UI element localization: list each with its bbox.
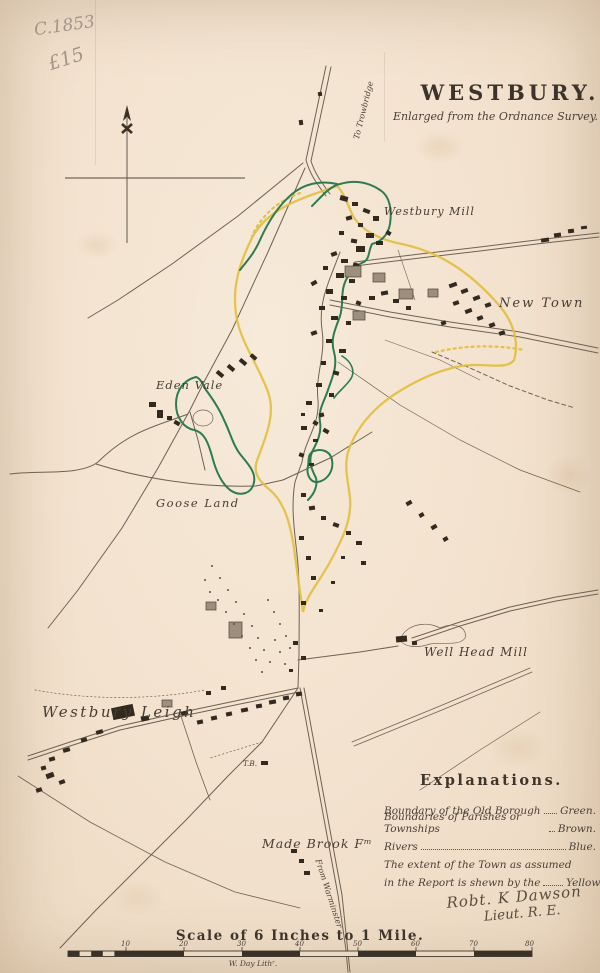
label-new-town: New Town — [499, 296, 584, 311]
label-eden-vale: Eden Vale — [156, 378, 223, 392]
legend-value: Green. — [560, 805, 596, 817]
buildings-layer — [35, 92, 587, 875]
lithographer-credit: W. Day Lithʳ. — [203, 959, 303, 968]
scale-tick-label: 80 — [525, 940, 534, 948]
scale-tick-label: 20 — [179, 940, 188, 948]
scale-tick-label: 50 — [353, 940, 362, 948]
legend-label: The extent of the Town as assumed — [384, 859, 572, 871]
scale-tick-label: 40 — [295, 940, 304, 948]
label-goose-land: Goose Land — [156, 496, 240, 510]
scale-tick-label: 10 — [121, 940, 130, 948]
legend-row: The extent of the Town as assumed — [384, 853, 600, 871]
legend-leader — [549, 831, 555, 832]
scale-tick-label: 70 — [469, 940, 478, 948]
legend-value: Brown. — [558, 823, 596, 835]
label-westbury-leigh: Westbury Leigh — [42, 703, 196, 721]
legend-explanations: Explanations. Boundary of the Old Boroug… — [384, 772, 600, 889]
label-westbury-mill: Westbury Mill — [384, 205, 475, 218]
label-made-brook-farm: Made Brook Fᵐ — [262, 836, 373, 851]
scale-tick-label: 60 — [411, 940, 420, 948]
yellow-extent-boundary — [235, 186, 524, 612]
label-well-head-mill: Well Head Mill — [424, 645, 528, 659]
legend-label: Rivers — [384, 841, 418, 853]
legend-leader — [421, 849, 566, 850]
scale-tick-label: 30 — [237, 940, 246, 948]
eden-vale-pond-outline — [193, 410, 213, 426]
legend-row: Boundaries of Parishes or Townships Brow… — [384, 817, 600, 835]
green-borough-boundary — [176, 182, 391, 500]
label-turnpike-bar: T.B. — [243, 759, 257, 768]
orchard-dots-layer — [204, 565, 291, 673]
map-subtitle: Enlarged from the Ordnance Survey. — [393, 110, 598, 123]
legend-value: Blue. — [569, 841, 596, 853]
legend-heading: Explanations. — [420, 772, 600, 789]
legend-row: Rivers Blue. — [384, 835, 600, 853]
map-title: WESTBURY. — [420, 80, 600, 105]
legend-label: Boundaries of Parishes or Townships — [384, 811, 546, 835]
antique-map-page: C.1853 £15 WESTBURY. Enlarged from the O… — [0, 0, 600, 973]
scale-bar — [68, 947, 532, 957]
north-arrow — [65, 105, 245, 243]
